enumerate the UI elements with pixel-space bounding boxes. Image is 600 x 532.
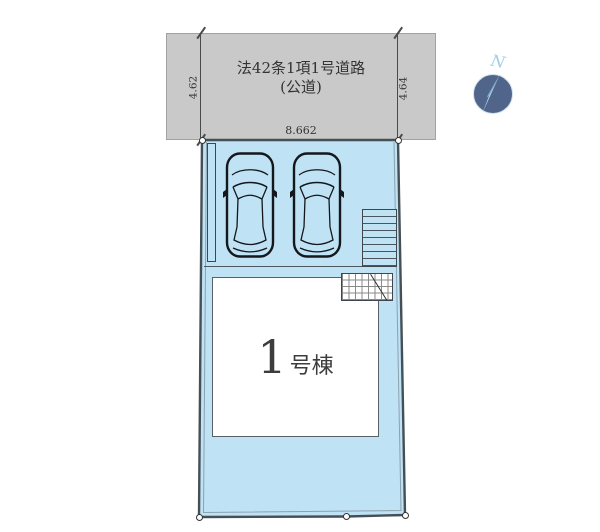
boundary-marker (395, 137, 402, 144)
boundary-marker (199, 137, 206, 144)
building-outline: 1 号棟 (212, 277, 379, 437)
boundary-marker (402, 512, 409, 519)
compass-icon (472, 73, 514, 115)
car-icon (222, 151, 278, 259)
boundary-marker (343, 513, 350, 520)
car-icon (289, 151, 345, 259)
wall-strip (207, 143, 216, 262)
site-plan: 法42条1項1号道路 (公道) 8.662 4.62 4.64 (0, 0, 600, 532)
boundary-marker (196, 514, 203, 521)
building-suffix: 号棟 (290, 348, 334, 380)
stairs-icon (362, 209, 397, 267)
building-label: 1 号棟 (257, 334, 333, 380)
building-number: 1 (257, 334, 286, 380)
